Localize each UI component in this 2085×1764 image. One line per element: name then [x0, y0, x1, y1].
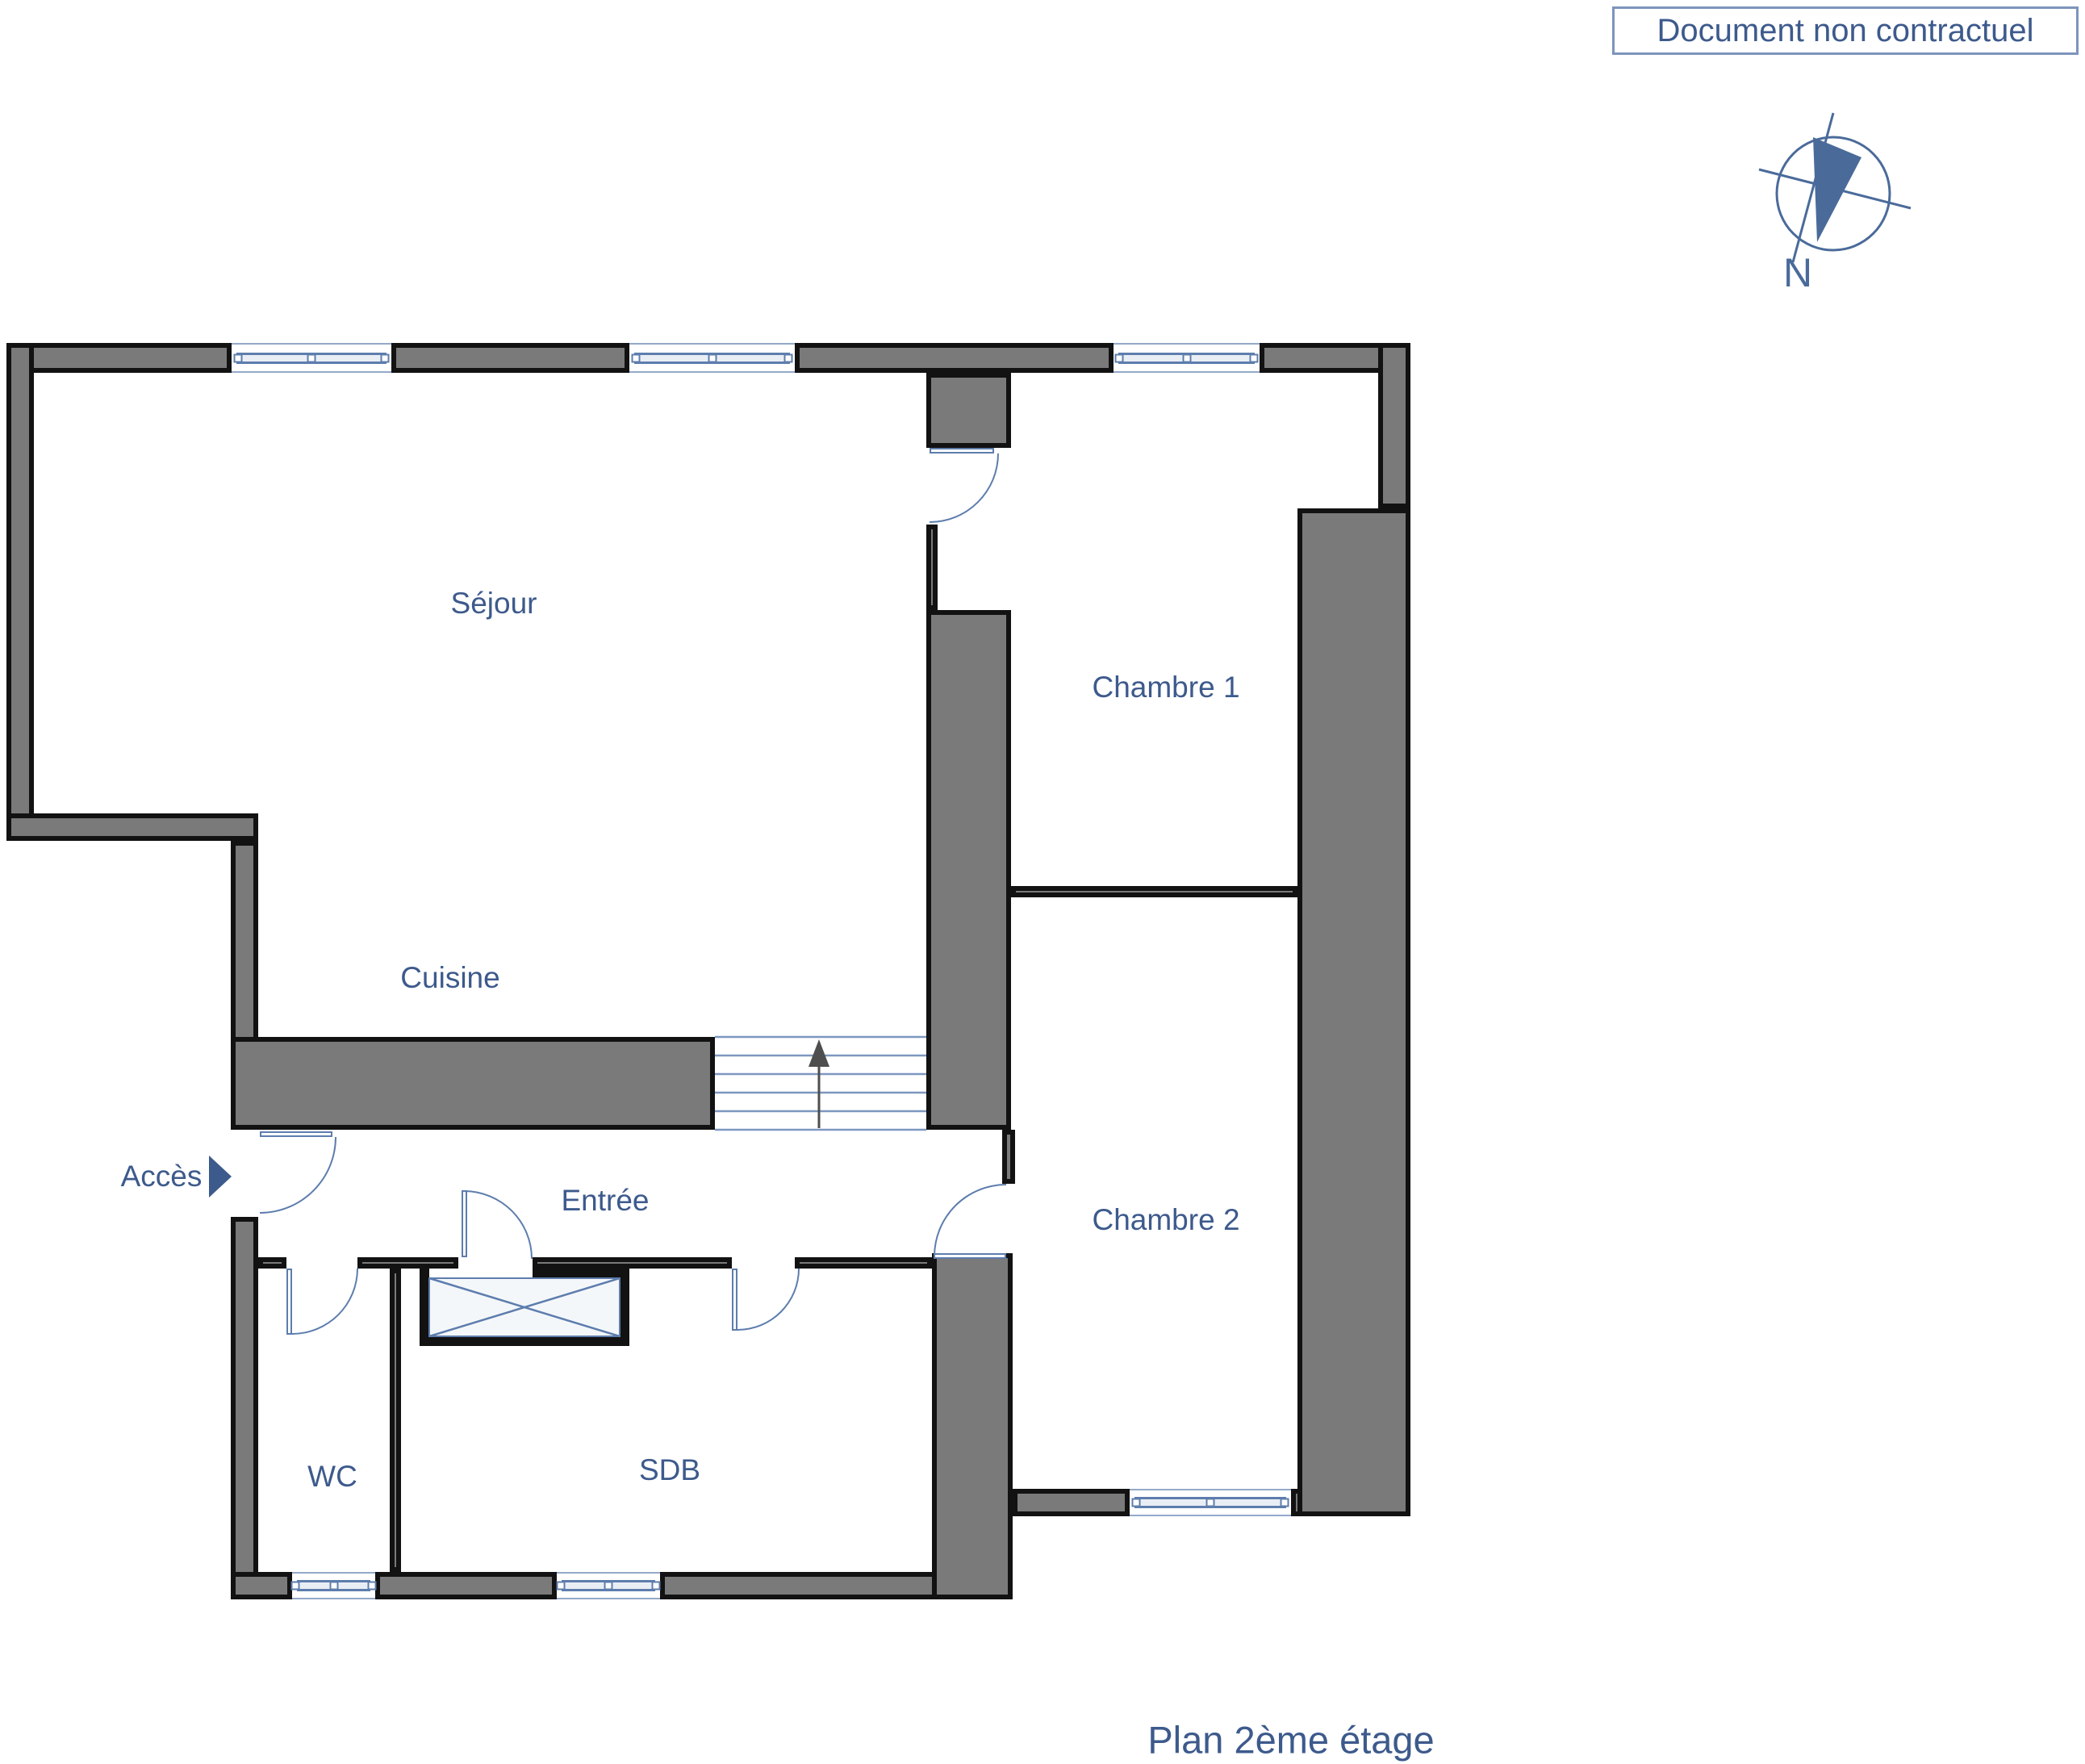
room-label-cuisine: Cuisine: [400, 961, 499, 995]
sejour-notch-v: [231, 841, 258, 1043]
window-nub: [307, 353, 316, 362]
hall-wall-seg-2: [357, 1257, 458, 1269]
column-a-thin: [926, 525, 938, 610]
window-nub: [1249, 353, 1258, 362]
placard-box-top: [533, 1269, 629, 1278]
door-leaf-acces: [260, 1131, 332, 1137]
right-wall-lower: [1297, 508, 1410, 1516]
top-wall-seg-2: [391, 343, 629, 373]
placard-x-line: [429, 1278, 620, 1336]
room-label-wc: WC: [307, 1460, 357, 1494]
window-nub: [381, 353, 390, 362]
hall-wall-seg-3: [533, 1257, 732, 1269]
access-arrow-icon: [209, 1156, 232, 1198]
window-chambre2: [1130, 1489, 1291, 1516]
top-wall-seg-1: [6, 343, 232, 373]
stair-arrow-head: [809, 1039, 829, 1067]
door-arc-sdb: [737, 1269, 800, 1331]
window-nub: [1206, 1499, 1215, 1507]
disclaimer-text: Document non contractuel: [1657, 13, 2034, 49]
door-arc-chambre2: [934, 1184, 1006, 1256]
door-arc-chambre1: [930, 454, 999, 523]
window-nub: [783, 353, 792, 362]
placard-box-left: [420, 1269, 429, 1346]
disclaimer-box: Document non contractuel: [1612, 6, 2079, 55]
window-nub: [708, 353, 717, 362]
hall-wall-seg-4: [795, 1257, 932, 1269]
window-nub: [1182, 353, 1191, 362]
room-label-sdb: SDB: [639, 1453, 700, 1487]
window-sdb: [557, 1572, 660, 1599]
bottom-wall-seg-1: [231, 1572, 292, 1599]
door-leaf-sdb: [732, 1269, 737, 1331]
window-nub: [1115, 353, 1124, 362]
room-label-sejour: Séjour: [451, 587, 537, 621]
compass-north-label: N: [1783, 249, 1812, 296]
window-chambre1: [1114, 343, 1260, 373]
window-nub: [632, 353, 641, 362]
compass-axis-line: [1793, 113, 1833, 262]
room-label-entree: Entrée: [561, 1184, 649, 1218]
compass-north-wedge-icon: [1813, 137, 1861, 242]
sdb-east-column: [932, 1253, 1013, 1599]
left-wall-lower: [231, 1217, 258, 1599]
window-nub: [233, 353, 242, 362]
hall-wall-seg-1: [258, 1257, 286, 1269]
window-nub: [604, 1582, 613, 1591]
bottom-wall-seg-2: [375, 1572, 557, 1599]
wc-east-wall: [390, 1269, 401, 1572]
door-leaf-wc: [286, 1269, 292, 1335]
sejour-notch-h: [6, 813, 258, 841]
top-wall-seg-3: [795, 343, 1114, 373]
ch1-ch2-divider: [1011, 886, 1297, 897]
plan-title: Plan 2ème étage: [1147, 1718, 1434, 1762]
door-leaf-chambre1: [930, 448, 994, 454]
window-nub: [557, 1582, 566, 1591]
ch2-bottom-wall-1: [1013, 1489, 1130, 1516]
placard-x-line: [429, 1278, 620, 1336]
window-nub: [1132, 1499, 1141, 1507]
placard-interior: [429, 1278, 620, 1336]
placard-box-bottom: [420, 1336, 629, 1346]
window-nub: [1281, 1499, 1289, 1507]
door-arc-wc: [292, 1269, 358, 1335]
room-label-chambre-1: Chambre 1: [1092, 671, 1239, 704]
left-wall-upper: [6, 343, 34, 841]
window-nub: [651, 1582, 660, 1591]
door-arc-placard: [464, 1190, 533, 1259]
door-arc-acces: [260, 1137, 336, 1214]
room-label-chambre-2: Chambre 2: [1092, 1203, 1239, 1237]
window-nub: [329, 1582, 338, 1591]
window-nub: [291, 1582, 300, 1591]
window-sejour-1: [232, 343, 391, 373]
window-wc: [292, 1572, 375, 1599]
column-a-top-block: [926, 373, 1011, 448]
right-wall-upper: [1378, 343, 1410, 508]
column-a-main: [926, 610, 1011, 1130]
window-nub: [367, 1582, 376, 1591]
compass-circle-icon: [1777, 137, 1890, 250]
floor-plan-canvas: Document non contractuel SéjourChambre 1…: [0, 0, 2085, 1764]
compass-axis-line: [1759, 169, 1911, 208]
ch2-door-stub: [1002, 1130, 1015, 1184]
room-label-acces: Accès: [121, 1160, 203, 1193]
placard-box-right: [620, 1269, 629, 1346]
window-sejour-2: [629, 343, 795, 373]
cuisine-south-slab: [231, 1037, 715, 1130]
